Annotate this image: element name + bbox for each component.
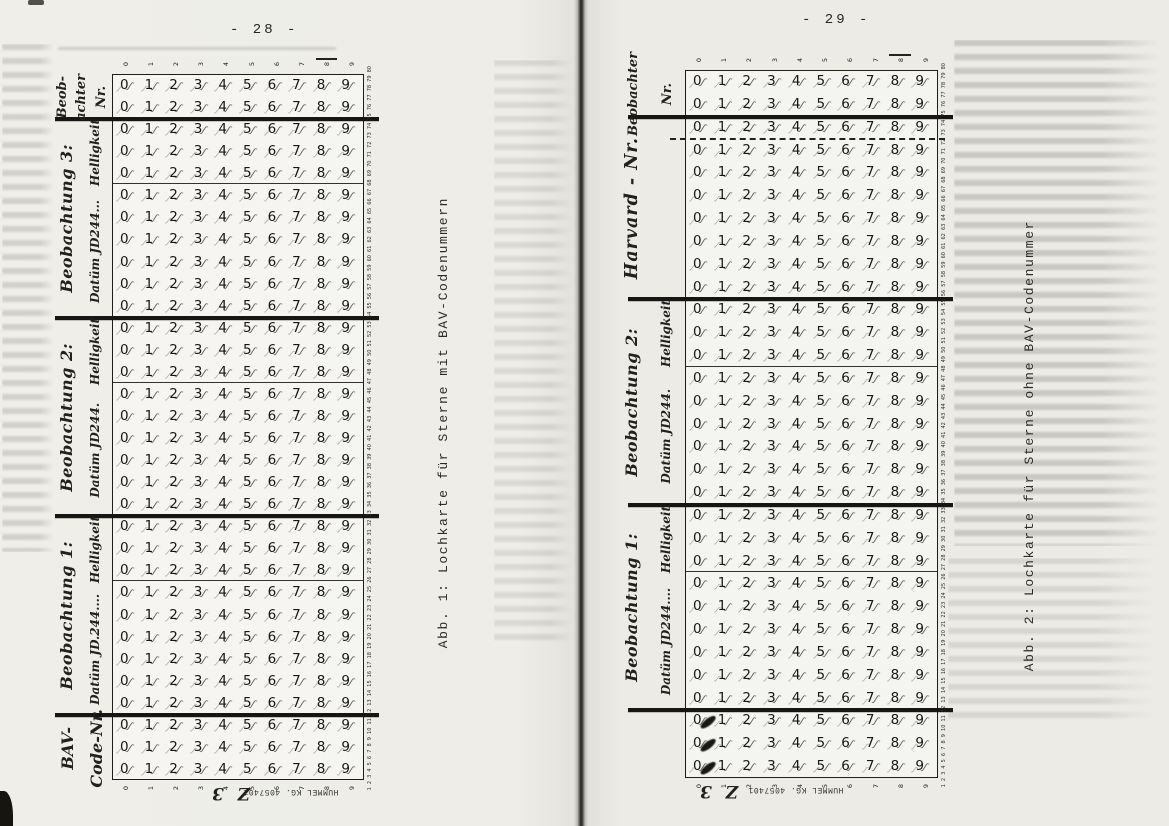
digit-cell: 6 bbox=[263, 362, 288, 384]
digit-cell: 0 bbox=[115, 538, 140, 560]
digit-cell: 3 bbox=[189, 428, 214, 450]
card-section-beobachtung-2-helligkeit: 012345678901234567890123456789 bbox=[113, 318, 363, 384]
digit-cell: 4 bbox=[787, 619, 812, 642]
card-row: 0123456789 bbox=[686, 619, 937, 642]
card-row: 0123456789 bbox=[113, 693, 363, 715]
digit-cell: 0 bbox=[688, 642, 713, 665]
card-row: 0123456789 bbox=[113, 163, 363, 185]
card-row: 0123456789 bbox=[113, 384, 363, 406]
digit-cell: 7 bbox=[287, 75, 312, 97]
digit-cell: 8 bbox=[312, 759, 337, 781]
digit-cell: 2 bbox=[737, 94, 762, 117]
card-section-punched-rows: 012345678901234567890123456789 bbox=[686, 710, 937, 779]
digit-cell: 7 bbox=[861, 710, 886, 733]
digit-cell: 9 bbox=[336, 494, 361, 516]
digit-cell: 4 bbox=[213, 560, 238, 582]
digit-cell: 5 bbox=[238, 229, 263, 251]
digit-cell: 1 bbox=[713, 368, 738, 391]
card-row: 0123456789 bbox=[113, 428, 363, 450]
digit-cell: 7 bbox=[287, 362, 312, 384]
digit-cell: 4 bbox=[213, 494, 238, 516]
label-main: Harvard - Nr. bbox=[616, 117, 647, 300]
digit-cell: 7 bbox=[287, 318, 312, 340]
digit-cell: 2 bbox=[737, 573, 762, 596]
card-label-beobachtung-1: Beobachtung 1:HelligkeitDatüm JD244.... bbox=[616, 505, 684, 711]
digit-cell: 7 bbox=[287, 759, 312, 781]
digit-cell: 5 bbox=[238, 582, 263, 604]
digit-cell: 7 bbox=[861, 368, 886, 391]
label-main-text: Harvard - Nr. bbox=[622, 137, 642, 279]
digit-cell: 1 bbox=[713, 619, 738, 642]
digit-cell: 7 bbox=[861, 231, 886, 254]
digit-cell: 5 bbox=[812, 94, 837, 117]
card-row: 0123456789 bbox=[686, 733, 937, 756]
card-row: 0123456789 bbox=[686, 551, 937, 574]
digit-cell: 1 bbox=[713, 254, 738, 277]
card-section-beobachtung-3-helligkeit: 012345678901234567890123456789 bbox=[113, 119, 363, 185]
card-row: 0123456789 bbox=[113, 538, 363, 560]
digit-cell: 0 bbox=[688, 665, 713, 688]
digit-cell: 2 bbox=[737, 482, 762, 505]
digit-cell: 5 bbox=[238, 252, 263, 274]
digit-cell: 2 bbox=[164, 693, 189, 715]
digit-cell: 8 bbox=[886, 688, 911, 711]
digit-cell: 7 bbox=[861, 94, 886, 117]
digit-cell: 3 bbox=[189, 318, 214, 340]
digit-cell: 5 bbox=[812, 322, 837, 345]
card-row: 0123456789 bbox=[113, 494, 363, 516]
card-row: 0123456789 bbox=[113, 318, 363, 340]
digit-cell: 8 bbox=[312, 671, 337, 693]
digit-cell: 0 bbox=[115, 737, 140, 759]
digit-cell: 7 bbox=[861, 665, 886, 688]
digit-cell: 4 bbox=[787, 254, 812, 277]
digit-cell: 7 bbox=[287, 693, 312, 715]
digit-cell: 7 bbox=[287, 428, 312, 450]
card-row: 0123456789 bbox=[686, 505, 937, 528]
label-field-datum-text: Datüm JD.244.... bbox=[88, 594, 102, 705]
digit-cell: 2 bbox=[164, 185, 189, 207]
digit-cell: 2 bbox=[737, 642, 762, 665]
digit-cell: 4 bbox=[787, 665, 812, 688]
label-main-text: Beobachtung 2: bbox=[57, 343, 76, 492]
digit-cell: 2 bbox=[164, 97, 189, 119]
digit-cell: 3 bbox=[762, 208, 787, 231]
card-row: 0123456789 bbox=[686, 231, 937, 254]
digit-cell: 5 bbox=[812, 733, 837, 756]
digit-cell: 4 bbox=[787, 642, 812, 665]
digit-cell: 0 bbox=[688, 551, 713, 574]
digit-cell: 7 bbox=[287, 538, 312, 560]
card-row: 0123456789 bbox=[686, 756, 937, 779]
digit-cell: 8 bbox=[312, 649, 337, 671]
digit-cell: 0 bbox=[115, 274, 140, 296]
label-field-datum: Datüm JD244. bbox=[647, 368, 684, 505]
digit-cell: 1 bbox=[140, 560, 165, 582]
digit-cell: 3 bbox=[762, 482, 787, 505]
card-section-beobachtung-1-datum: 0123456789012345678901234567890123456789… bbox=[113, 582, 363, 714]
digit-cell: 6 bbox=[836, 254, 861, 277]
bleedthrough-text-left-margin bbox=[2, 44, 54, 552]
digit-cell: 0 bbox=[688, 619, 713, 642]
card-section-beobachtung-2-helligkeit: 012345678901234567890123456789 bbox=[686, 299, 937, 368]
digit-cell: 8 bbox=[886, 185, 911, 208]
digit-cell: 7 bbox=[287, 141, 312, 163]
digit-cell: 9 bbox=[336, 75, 361, 97]
digit-cell: 3 bbox=[189, 715, 214, 737]
label-fields: HelligkeitDatüm JD.244.... bbox=[80, 516, 111, 715]
digit-cell: 2 bbox=[164, 649, 189, 671]
digit-cell: 0 bbox=[115, 693, 140, 715]
digit-cell: 8 bbox=[312, 75, 337, 97]
digit-cell: 1 bbox=[713, 596, 738, 619]
digit-cell: 3 bbox=[762, 345, 787, 368]
section-divider-thin bbox=[113, 580, 363, 581]
edge-digit: 7 bbox=[872, 781, 880, 791]
digit-cell: 8 bbox=[312, 207, 337, 229]
edge-column-numbers-text: 1 2 3 4 5 6 7 8 9 10 11 12 13 14 15 16 1… bbox=[368, 66, 373, 790]
digit-cell: 1 bbox=[140, 229, 165, 251]
digit-cell: 8 bbox=[312, 185, 337, 207]
digit-cell: 8 bbox=[886, 482, 911, 505]
digit-cell: 8 bbox=[312, 472, 337, 494]
card-row: 0123456789 bbox=[113, 362, 363, 384]
digit-cell: 4 bbox=[787, 733, 812, 756]
digit-cell: 9 bbox=[910, 710, 935, 733]
digit-cell: 1 bbox=[713, 551, 738, 574]
digit-cell: 5 bbox=[238, 494, 263, 516]
digit-cell: 0 bbox=[688, 94, 713, 117]
card-row: 0123456789 bbox=[113, 759, 363, 781]
digit-cell: 0 bbox=[688, 573, 713, 596]
digit-cell: 3 bbox=[189, 538, 214, 560]
figure-caption-text: Abb. 2: Lochkarte für Sterne ohne BAV-Co… bbox=[1022, 220, 1037, 671]
digit-cell: 4 bbox=[213, 759, 238, 781]
digit-cell: 9 bbox=[336, 538, 361, 560]
digit-cell: 7 bbox=[861, 71, 886, 94]
label-line-1: Nr. bbox=[660, 83, 675, 105]
digit-cell: 2 bbox=[164, 715, 189, 737]
digit-cell: 4 bbox=[787, 185, 812, 208]
label-field-datum-text: Datüm JD244.... bbox=[659, 588, 673, 695]
digit-cell: 0 bbox=[115, 605, 140, 627]
digit-cell: 4 bbox=[787, 596, 812, 619]
label-line-1: achter bbox=[74, 74, 89, 121]
digit-cell: 5 bbox=[238, 605, 263, 627]
digit-cell: 8 bbox=[312, 340, 337, 362]
digit-cell: 0 bbox=[688, 391, 713, 414]
digit-cell: 7 bbox=[861, 642, 886, 665]
digit-cell: 6 bbox=[263, 252, 288, 274]
digit-cell: 8 bbox=[886, 756, 911, 779]
digit-cell: 3 bbox=[762, 414, 787, 437]
label-field-helligkeit: Helligkeit bbox=[647, 299, 684, 368]
digit-cell: 8 bbox=[886, 140, 911, 163]
digit-cell: 6 bbox=[836, 642, 861, 665]
digit-cell: 8 bbox=[886, 573, 911, 596]
section-divider-thin bbox=[113, 183, 363, 184]
digit-cell: 6 bbox=[263, 450, 288, 472]
digit-cell: 0 bbox=[688, 162, 713, 185]
digit-cell: 2 bbox=[737, 665, 762, 688]
digit-cell: 3 bbox=[189, 759, 214, 781]
digit-cell: 5 bbox=[812, 391, 837, 414]
card-row: 0123456789 bbox=[686, 596, 937, 619]
digit-cell: 9 bbox=[336, 759, 361, 781]
digit-cell: 5 bbox=[238, 141, 263, 163]
digit-cell: 1 bbox=[713, 528, 738, 551]
digit-cell: 5 bbox=[812, 277, 837, 300]
label-field-datum: Datüm JD244.... bbox=[647, 573, 684, 710]
digit-cell: 6 bbox=[263, 318, 288, 340]
digit-cell: 8 bbox=[312, 362, 337, 384]
digit-cell: 0 bbox=[688, 505, 713, 528]
digit-cell: 2 bbox=[164, 362, 189, 384]
digit-cell: 1 bbox=[140, 627, 165, 649]
digit-cell: 3 bbox=[189, 362, 214, 384]
card-row: 0123456789 bbox=[113, 406, 363, 428]
digit-cell: 1 bbox=[140, 163, 165, 185]
digit-cell: 6 bbox=[263, 605, 288, 627]
digit-cell: 1 bbox=[713, 665, 738, 688]
digit-cell: 2 bbox=[737, 368, 762, 391]
digit-cell: 4 bbox=[787, 459, 812, 482]
card-row: 0123456789 bbox=[686, 391, 937, 414]
digit-cell: 5 bbox=[812, 117, 837, 140]
digit-cell: 7 bbox=[287, 229, 312, 251]
digit-cell: 9 bbox=[910, 140, 935, 163]
digit-cell: 9 bbox=[336, 649, 361, 671]
card-label-beobachtung-3: Beobachtung 3:HelligkeitDatüm JD244... bbox=[53, 119, 111, 318]
digit-cell: 7 bbox=[861, 756, 886, 779]
digit-cell: 3 bbox=[762, 688, 787, 711]
edge-digit-overline bbox=[316, 58, 337, 60]
card-row: 0123456789 bbox=[686, 688, 937, 711]
digit-cell: 1 bbox=[140, 715, 165, 737]
digit-cell: 2 bbox=[737, 322, 762, 345]
digit-cell: 5 bbox=[812, 688, 837, 711]
digit-cell: 5 bbox=[238, 119, 263, 141]
digit-cell: 7 bbox=[861, 436, 886, 459]
digit-cell: 3 bbox=[189, 163, 214, 185]
card-row: 0123456789 bbox=[686, 185, 937, 208]
digit-cell: 4 bbox=[213, 605, 238, 627]
label-lines: BeobachterNr. bbox=[616, 71, 684, 117]
digit-cell: 4 bbox=[787, 505, 812, 528]
digit-cell: 5 bbox=[812, 345, 837, 368]
digit-cell: 1 bbox=[140, 494, 165, 516]
digit-cell: 3 bbox=[762, 162, 787, 185]
digit-cell: 7 bbox=[287, 274, 312, 296]
digit-cell: 6 bbox=[263, 229, 288, 251]
digit-cell: 8 bbox=[886, 414, 911, 437]
digit-cell: 7 bbox=[861, 688, 886, 711]
digit-cell: 1 bbox=[713, 231, 738, 254]
digit-cell: 2 bbox=[164, 252, 189, 274]
digit-cell: 7 bbox=[287, 737, 312, 759]
digit-cell: 9 bbox=[910, 277, 935, 300]
digit-cell: 1 bbox=[140, 649, 165, 671]
digit-cell: 0 bbox=[115, 340, 140, 362]
digit-cell: 2 bbox=[737, 596, 762, 619]
digit-cell: 9 bbox=[336, 472, 361, 494]
card-row: 0123456789 bbox=[686, 345, 937, 368]
digit-cell: 4 bbox=[213, 406, 238, 428]
digit-cell: 9 bbox=[336, 715, 361, 737]
digit-cell: 0 bbox=[688, 528, 713, 551]
digit-cell: 0 bbox=[115, 119, 140, 141]
digit-cell: 0 bbox=[115, 384, 140, 406]
card-section-beobachtung-1-datum: 0123456789012345678901234567890123456789… bbox=[686, 573, 937, 710]
digit-cell: 4 bbox=[787, 117, 812, 140]
digit-cell: 1 bbox=[713, 642, 738, 665]
digit-cell: 0 bbox=[115, 671, 140, 693]
digit-cell: 2 bbox=[164, 207, 189, 229]
scan-edge-artifact bbox=[28, 0, 44, 5]
digit-cell: 6 bbox=[836, 619, 861, 642]
digit-cell: 2 bbox=[737, 117, 762, 140]
card-row: 0123456789 bbox=[113, 229, 363, 251]
digit-cell: 9 bbox=[336, 560, 361, 582]
digit-cell: 0 bbox=[115, 582, 140, 604]
digit-cell: 9 bbox=[336, 229, 361, 251]
digit-cell: 7 bbox=[861, 573, 886, 596]
card-row: 0123456789 bbox=[113, 671, 363, 693]
digit-cell: 6 bbox=[836, 573, 861, 596]
edge-digit: 1 bbox=[147, 59, 155, 69]
digit-cell: 4 bbox=[213, 715, 238, 737]
card-row: 0123456789 bbox=[113, 649, 363, 671]
label-line-0: Beob- bbox=[55, 76, 70, 118]
digit-cell: 9 bbox=[910, 642, 935, 665]
digit-cell: 4 bbox=[213, 97, 238, 119]
edge-digit: 7 bbox=[872, 55, 880, 65]
digit-cell: 7 bbox=[861, 596, 886, 619]
digit-cell: 0 bbox=[688, 254, 713, 277]
digit-cell: 0 bbox=[115, 406, 140, 428]
scanned-page-28: - 28 - 012345678901234567890123456789012… bbox=[0, 0, 576, 826]
digit-cell: 3 bbox=[189, 340, 214, 362]
digit-cell: 6 bbox=[836, 482, 861, 505]
digit-cell: 8 bbox=[886, 733, 911, 756]
edge-digit: 9 bbox=[922, 781, 930, 791]
digit-cell: 3 bbox=[189, 605, 214, 627]
digit-cell: 7 bbox=[287, 627, 312, 649]
digit-cell: 2 bbox=[164, 759, 189, 781]
digit-cell: 9 bbox=[336, 428, 361, 450]
digit-cell: 4 bbox=[787, 140, 812, 163]
page-number: - 29 - bbox=[802, 12, 870, 28]
digit-cell: 1 bbox=[140, 737, 165, 759]
digit-cell: 5 bbox=[812, 71, 837, 94]
digit-cell: 6 bbox=[263, 428, 288, 450]
bleedthrough-heading-line bbox=[58, 47, 336, 50]
digit-cell: 7 bbox=[861, 140, 886, 163]
digit-cell: 6 bbox=[263, 693, 288, 715]
digit-cell: 8 bbox=[312, 560, 337, 582]
digit-cell: 9 bbox=[336, 384, 361, 406]
card-row: 0123456789 bbox=[686, 94, 937, 117]
digit-cell: 6 bbox=[836, 277, 861, 300]
digit-cell: 7 bbox=[287, 494, 312, 516]
digit-cell: 3 bbox=[189, 671, 214, 693]
digit-cell: 3 bbox=[189, 185, 214, 207]
digit-cell: 8 bbox=[312, 582, 337, 604]
digit-cell: 7 bbox=[861, 208, 886, 231]
digit-cell: 8 bbox=[886, 345, 911, 368]
digit-cell: 3 bbox=[189, 472, 214, 494]
digit-cell: 4 bbox=[787, 551, 812, 574]
digit-cell: 3 bbox=[762, 551, 787, 574]
digit-cell: 1 bbox=[713, 322, 738, 345]
card-row: 0123456789 bbox=[113, 274, 363, 296]
digit-cell: 1 bbox=[140, 75, 165, 97]
edge-digit: 1 bbox=[147, 783, 155, 793]
digit-cell: 9 bbox=[910, 117, 935, 140]
digit-cell: 1 bbox=[140, 759, 165, 781]
digit-cell: 5 bbox=[812, 231, 837, 254]
digit-cell: 9 bbox=[910, 665, 935, 688]
digit-cell: 6 bbox=[836, 208, 861, 231]
digit-cell: 4 bbox=[787, 688, 812, 711]
digit-cell: 3 bbox=[189, 384, 214, 406]
digit-cell: 8 bbox=[312, 605, 337, 627]
digit-cell: 5 bbox=[238, 428, 263, 450]
digit-cell: 9 bbox=[336, 627, 361, 649]
digit-cell: 8 bbox=[312, 274, 337, 296]
digit-cell: 1 bbox=[140, 693, 165, 715]
card-row: 0123456789 bbox=[686, 162, 937, 185]
digit-cell: 9 bbox=[910, 436, 935, 459]
digit-cell: 0 bbox=[115, 362, 140, 384]
digit-cell: 3 bbox=[189, 560, 214, 582]
digit-cell: 3 bbox=[762, 368, 787, 391]
digit-cell: 7 bbox=[287, 119, 312, 141]
digit-cell: 7 bbox=[287, 207, 312, 229]
digit-cell: 4 bbox=[787, 756, 812, 779]
digit-cell: 9 bbox=[910, 459, 935, 482]
digit-cell: 6 bbox=[836, 551, 861, 574]
digit-cell: 0 bbox=[115, 627, 140, 649]
edge-digit: 3 bbox=[197, 59, 205, 69]
digit-cell: 5 bbox=[238, 163, 263, 185]
edge-digit: 4 bbox=[222, 59, 230, 69]
digit-cell: 7 bbox=[287, 163, 312, 185]
digit-cell: 8 bbox=[886, 94, 911, 117]
digit-cell: 4 bbox=[787, 573, 812, 596]
digit-cell: 2 bbox=[164, 119, 189, 141]
label-field-datum: Datüm JD244... bbox=[80, 186, 111, 317]
card-row: 0123456789 bbox=[113, 715, 363, 737]
digit-cell: 9 bbox=[336, 582, 361, 604]
digit-cell: 3 bbox=[762, 140, 787, 163]
digit-cell: 1 bbox=[713, 345, 738, 368]
card-row: 0123456789 bbox=[686, 665, 937, 688]
digit-cell: 6 bbox=[263, 759, 288, 781]
digit-cell: 9 bbox=[910, 482, 935, 505]
digit-cell: 5 bbox=[812, 436, 837, 459]
digit-cell: 7 bbox=[287, 516, 312, 538]
edge-digit: 6 bbox=[846, 55, 854, 65]
digit-cell: 1 bbox=[713, 459, 738, 482]
digit-cell: 0 bbox=[115, 472, 140, 494]
digit-cell: 1 bbox=[140, 207, 165, 229]
digit-cell: 2 bbox=[164, 560, 189, 582]
digit-cell: 5 bbox=[812, 551, 837, 574]
label-main: Beobachtung 2: bbox=[53, 318, 80, 517]
digit-cell: 6 bbox=[263, 75, 288, 97]
digit-cell: 4 bbox=[787, 299, 812, 322]
